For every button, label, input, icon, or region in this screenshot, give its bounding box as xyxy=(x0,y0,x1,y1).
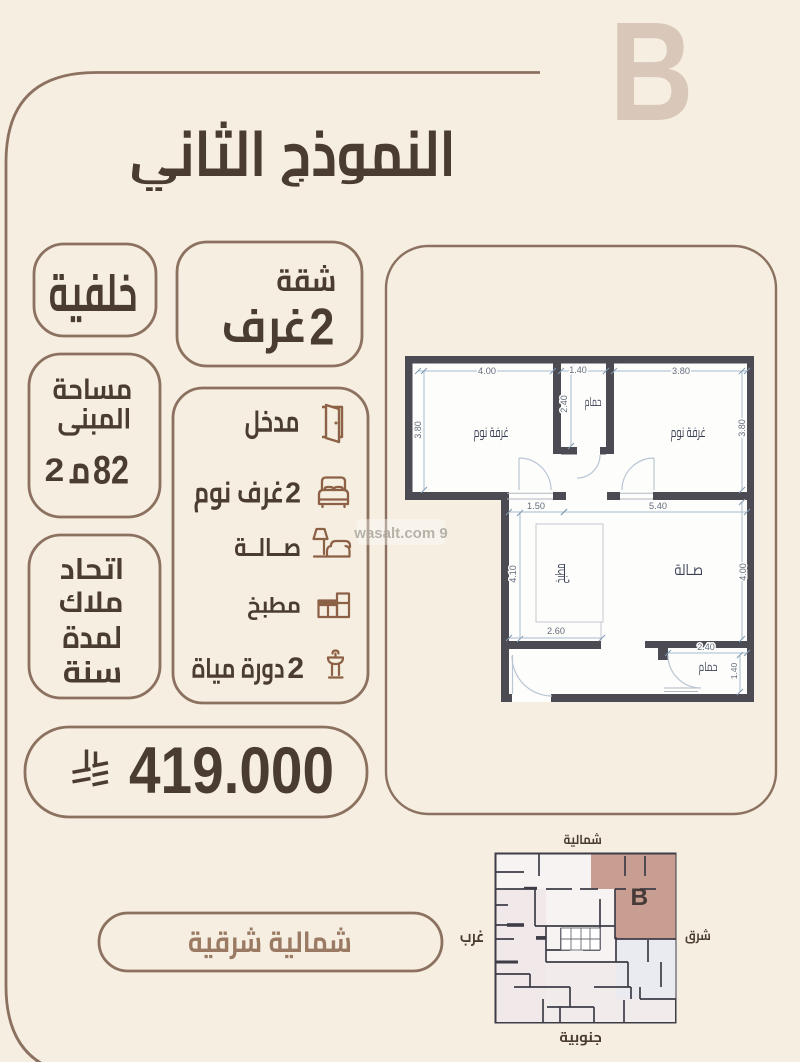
svg-text:2: 2 xyxy=(285,477,301,509)
svg-text:1.40: 1.40 xyxy=(569,365,587,375)
svg-text:4.00: 4.00 xyxy=(738,563,748,581)
svg-text:1.50: 1.50 xyxy=(527,501,545,511)
svg-text:5.40: 5.40 xyxy=(649,501,667,511)
svg-text:3.80: 3.80 xyxy=(672,366,690,376)
svg-text:B: B xyxy=(631,884,649,911)
svg-text:4.00: 4.00 xyxy=(478,366,496,376)
svg-text:82: 82 xyxy=(93,448,129,492)
svg-text:4.10: 4.10 xyxy=(508,565,518,583)
svg-text:2.60: 2.60 xyxy=(547,626,565,636)
svg-text:419.000: 419.000 xyxy=(129,734,334,807)
svg-text:2.40: 2.40 xyxy=(697,642,715,652)
svg-text:2: 2 xyxy=(309,298,334,356)
svg-text:2.40: 2.40 xyxy=(559,395,569,413)
svg-text:wasalt.com 9: wasalt.com 9 xyxy=(353,525,447,542)
svg-text:2: 2 xyxy=(287,652,304,685)
svg-text:3.80: 3.80 xyxy=(737,419,747,437)
svg-text:1.40: 1.40 xyxy=(729,662,739,679)
svg-text:B: B xyxy=(610,0,694,150)
svg-text:3.80: 3.80 xyxy=(413,421,423,439)
svg-text:2: 2 xyxy=(45,452,65,488)
